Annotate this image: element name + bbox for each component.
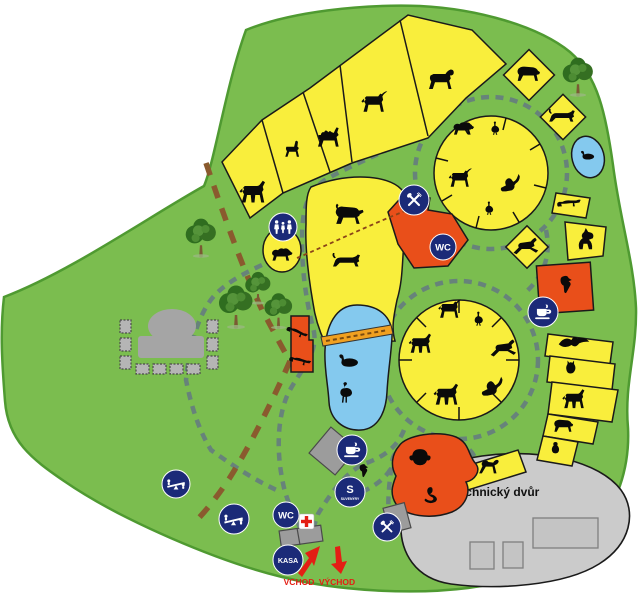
exit-label: VÝCHOD — [319, 576, 355, 587]
entrance-label: VCHOD — [284, 577, 315, 587]
playground-south-icon[interactable] — [219, 504, 249, 534]
technical-building — [503, 542, 523, 568]
waterfowl-pond — [321, 305, 393, 430]
souvenir-shop-icon[interactable]: S SUVENÝRY — [335, 477, 365, 507]
souvenir-word: SUVENÝRY — [341, 496, 360, 501]
technical-building — [470, 542, 494, 569]
zoo-map-svg: technický dvůr — [0, 0, 640, 595]
otter-house — [291, 316, 313, 372]
wc-entrance-label: WC — [278, 511, 294, 522]
wc-north-icon[interactable]: WC — [430, 234, 456, 260]
playground-west-icon[interactable] — [162, 470, 190, 498]
ticket-office-icon[interactable]: KASA — [273, 545, 303, 575]
cafe-central-icon[interactable] — [337, 435, 367, 465]
visitors-icon — [274, 220, 292, 234]
zoo-map: technický dvůr — [0, 0, 640, 595]
first-aid-icon[interactable] — [299, 514, 314, 529]
ticket-office-label: KASA — [278, 556, 298, 565]
owl-icon — [566, 360, 575, 373]
petting-zoo-icon[interactable] — [269, 213, 297, 241]
wc-entrance-icon[interactable]: WC — [273, 502, 299, 528]
restaurant-north-icon[interactable] — [399, 185, 429, 215]
technical-building — [533, 518, 598, 548]
wc-north-label: WC — [435, 243, 451, 254]
restaurant-south-icon[interactable] — [373, 513, 401, 541]
cafe-east-icon[interactable] — [528, 297, 558, 327]
souvenir-initial: S — [346, 484, 353, 496]
upper-circle-paddock — [434, 116, 548, 230]
